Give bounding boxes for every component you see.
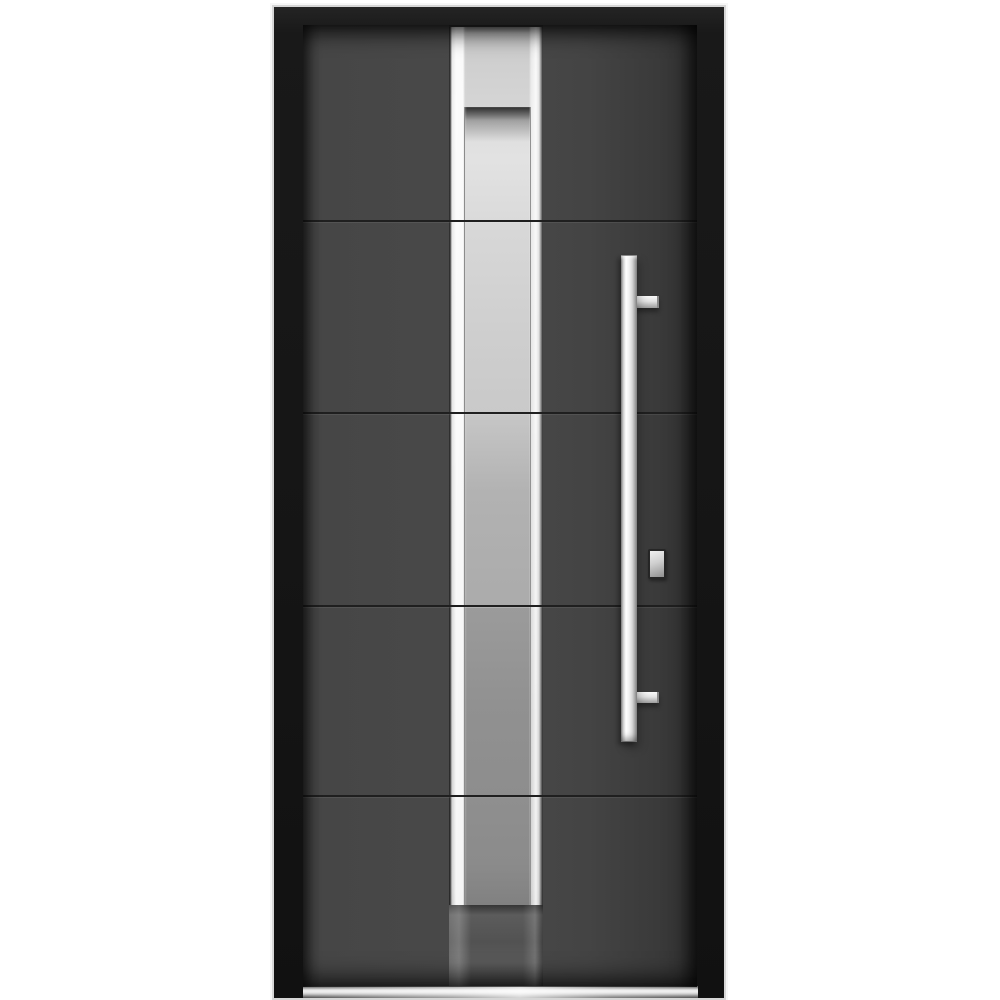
door-slab (303, 25, 697, 987)
glass-band (465, 415, 530, 608)
door-product-photo (0, 0, 1000, 1000)
panel-groove (303, 412, 697, 415)
door-pull-handle (621, 255, 637, 742)
door-frame (274, 7, 724, 998)
panel-groove (303, 605, 697, 608)
panel-groove (303, 220, 697, 223)
panel-groove (303, 795, 697, 798)
threshold-sill (303, 986, 698, 998)
handle-bracket-top (635, 296, 659, 308)
handle-bracket-bottom (635, 692, 659, 703)
frosted-glass-insert (464, 107, 531, 907)
steel-strip (449, 25, 543, 987)
glass-band (465, 608, 530, 798)
steel-strip-lower-panel (449, 905, 543, 987)
lock-cylinder (648, 549, 666, 579)
glass-band (465, 798, 530, 908)
glass-band (465, 108, 530, 223)
glass-band (465, 223, 530, 415)
